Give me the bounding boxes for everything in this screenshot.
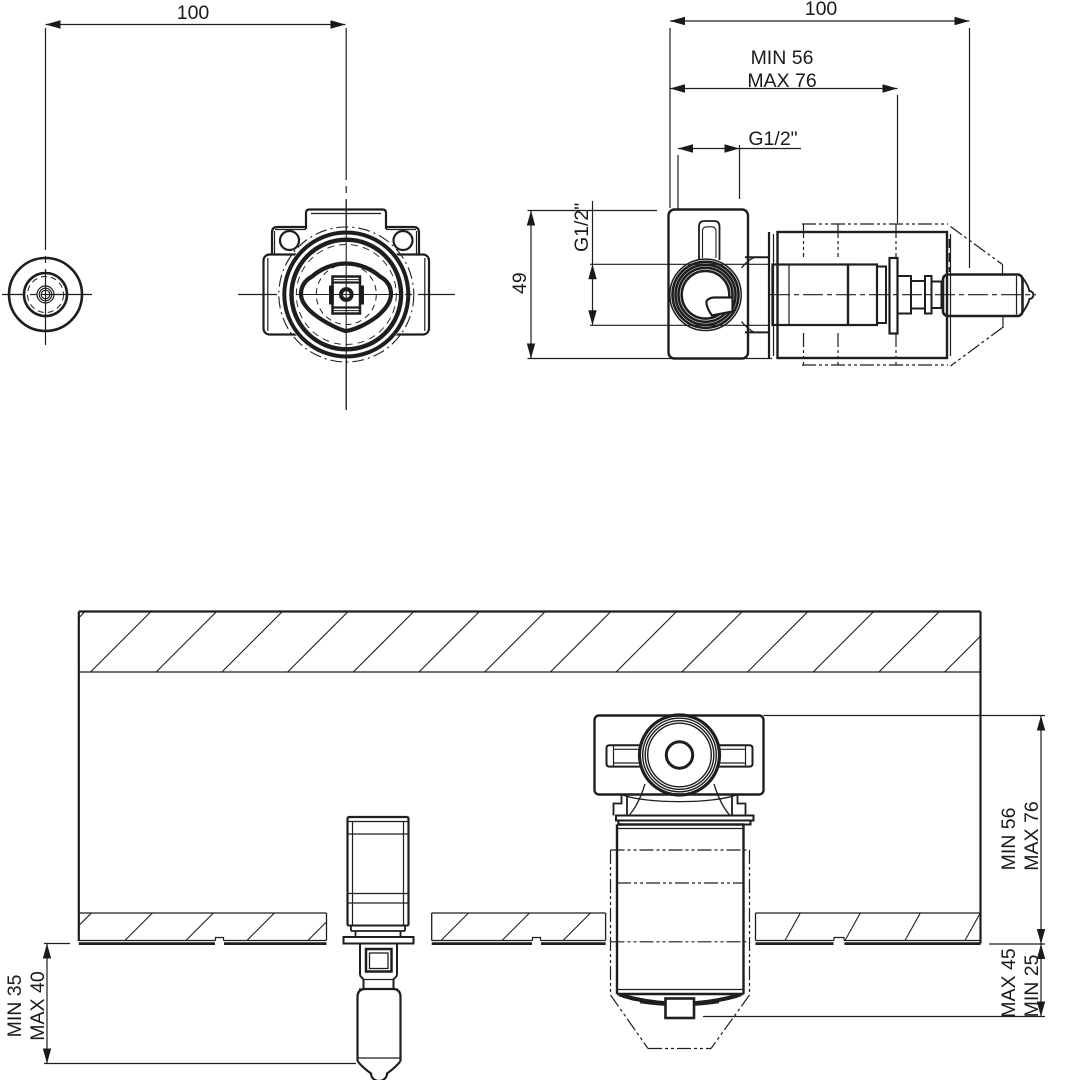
svg-text:MIN 56: MIN 56 [751, 47, 814, 69]
svg-text:G1/2": G1/2" [748, 128, 797, 150]
svg-text:MIN 35: MIN 35 [4, 974, 26, 1037]
svg-text:49: 49 [509, 272, 531, 294]
svg-text:100: 100 [177, 2, 210, 24]
svg-text:MAX 76: MAX 76 [1021, 801, 1043, 870]
svg-text:MAX 45: MAX 45 [998, 948, 1020, 1018]
svg-text:MIN 56: MIN 56 [998, 808, 1020, 871]
svg-text:100: 100 [805, 0, 838, 20]
svg-text:MIN 25: MIN 25 [1021, 954, 1043, 1017]
svg-text:MAX 40: MAX 40 [27, 971, 49, 1041]
